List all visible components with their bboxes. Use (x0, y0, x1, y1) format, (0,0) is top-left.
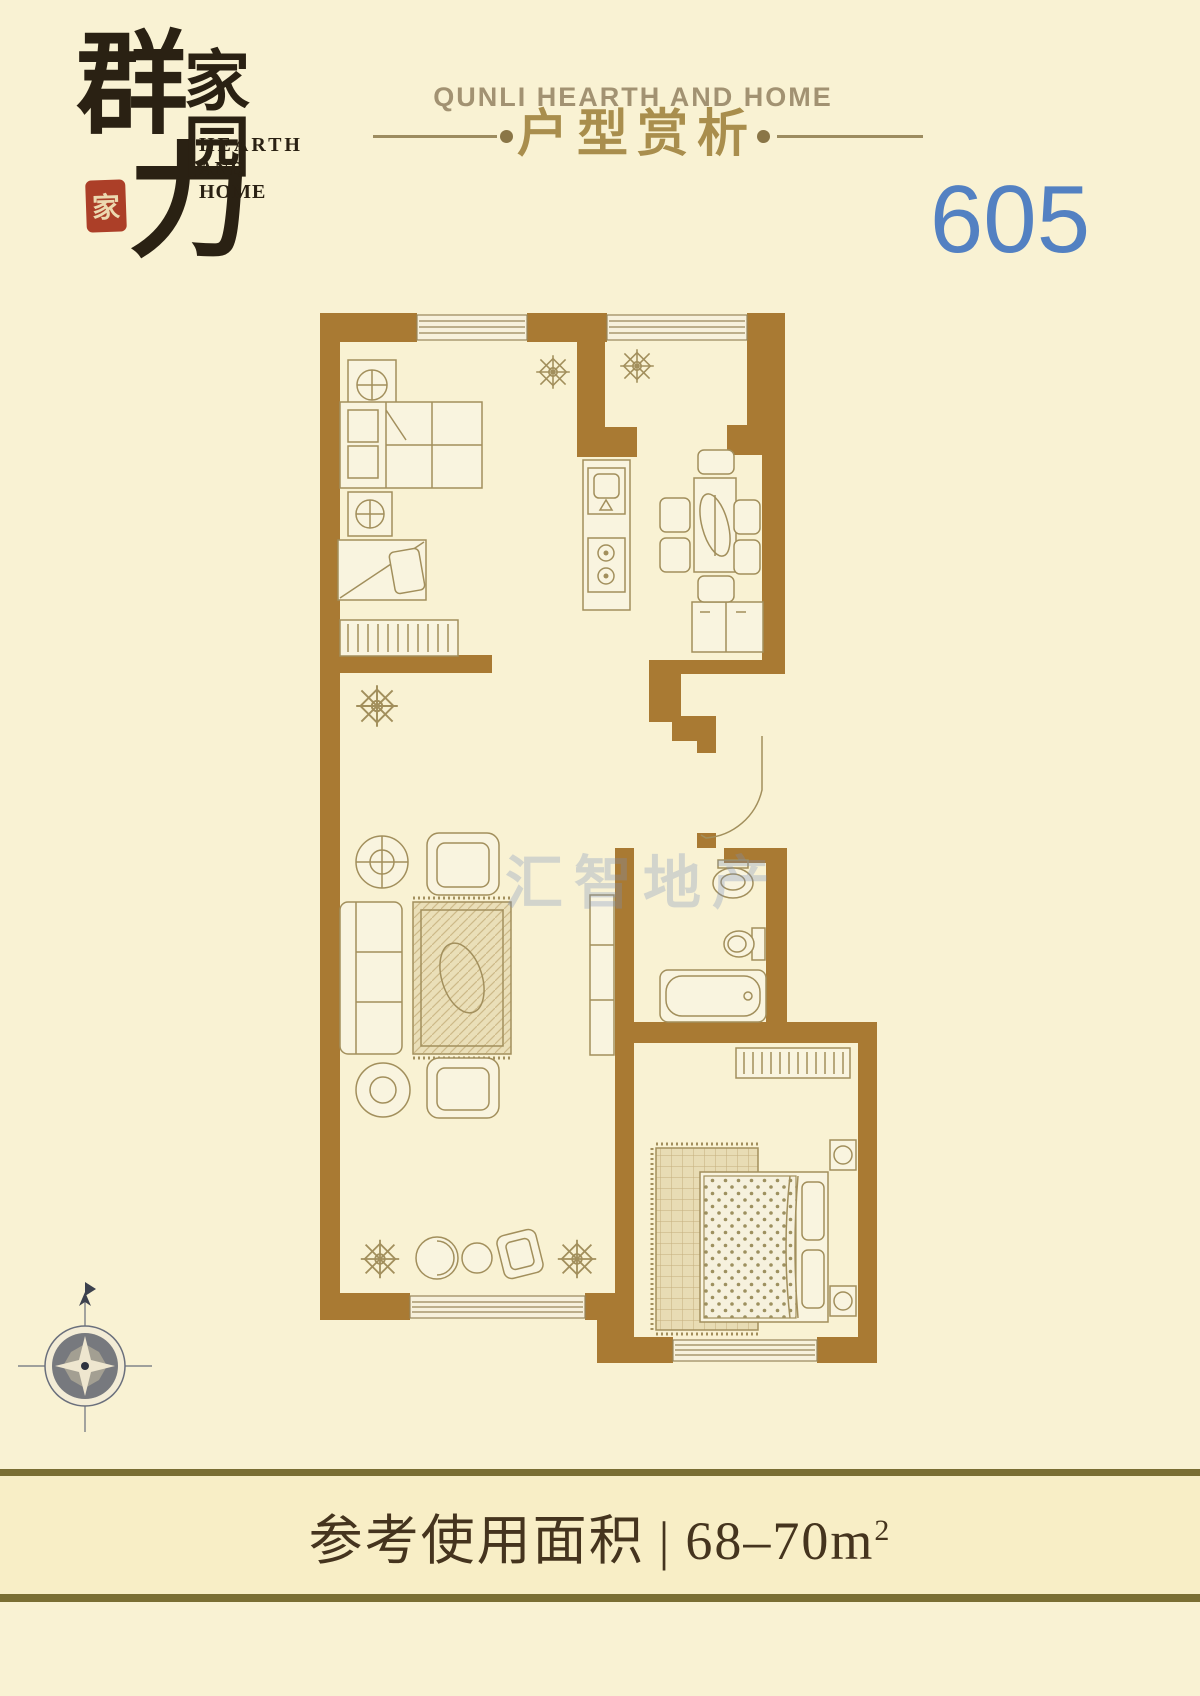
kitchen-counter (583, 460, 630, 610)
plant-icon (558, 1240, 596, 1278)
dining-table-icon (694, 478, 736, 572)
logo-tagline-line2: AND HOME (199, 158, 266, 204)
dresser-icon (736, 1048, 850, 1078)
bedroom-2 (652, 1048, 856, 1334)
unit-number: 605 (915, 172, 1105, 268)
flyer-page: 群 力 家园 HEARTH AND HOME 家 QUNLI HEARTH AN… (0, 0, 1200, 1696)
bed-icon (340, 402, 482, 488)
rug-icon (413, 898, 511, 1058)
header-dot-left (500, 130, 513, 143)
area-sup: 2 (874, 1514, 891, 1547)
nightstand-icon (830, 1286, 856, 1316)
plant-icon (356, 685, 398, 727)
dresser-icon (340, 620, 458, 656)
window (417, 315, 527, 340)
wardrobe-icon (338, 540, 426, 600)
window (410, 1296, 585, 1318)
area-value: 68–70m (685, 1511, 874, 1571)
bedroom-1 (338, 355, 570, 656)
stool-icon (495, 1228, 544, 1280)
window (607, 315, 747, 340)
stool-icon (462, 1243, 492, 1273)
header-dot-right (757, 130, 770, 143)
header-rule-right (777, 135, 923, 138)
armchair-icon (427, 1058, 499, 1118)
bathtub-icon (660, 970, 766, 1022)
area-separator: | (659, 1511, 672, 1571)
stool-icon (416, 1237, 458, 1279)
side-table-icon (356, 1063, 410, 1117)
armchair-icon (427, 833, 499, 895)
bed-icon (700, 1172, 828, 1322)
logo-seal: 家 (85, 179, 127, 232)
agency-watermark: 汇智地产 (505, 836, 781, 920)
living-room (340, 685, 614, 1280)
toilet-icon (724, 928, 765, 960)
logo-char-qun: 群 (76, 30, 188, 142)
logo-seal-char: 家 (91, 186, 120, 227)
sofa-icon (340, 902, 402, 1054)
area-text: 参考使用面积|68–70m2 (309, 1496, 892, 1575)
fridge-icon (692, 602, 763, 652)
plant-icon (620, 349, 654, 383)
plant-icon (361, 1240, 399, 1278)
footer-rule-bottom (0, 1594, 1200, 1602)
footer-rule-top (0, 1469, 1200, 1476)
round-table-icon (356, 836, 408, 888)
footer-area-band: 参考使用面积|68–70m2 (0, 1476, 1200, 1594)
logo-tagline-line1: HEARTH (199, 134, 303, 157)
area-label: 参考使用面积 (309, 1511, 645, 1571)
compass-rose-icon (18, 1282, 152, 1432)
nightstand-icon (348, 492, 392, 536)
kitchen-dining (583, 349, 763, 652)
header-rule-left (373, 135, 497, 138)
plant-icon (536, 355, 570, 389)
nightstand-icon (830, 1140, 856, 1170)
window (673, 1340, 817, 1361)
